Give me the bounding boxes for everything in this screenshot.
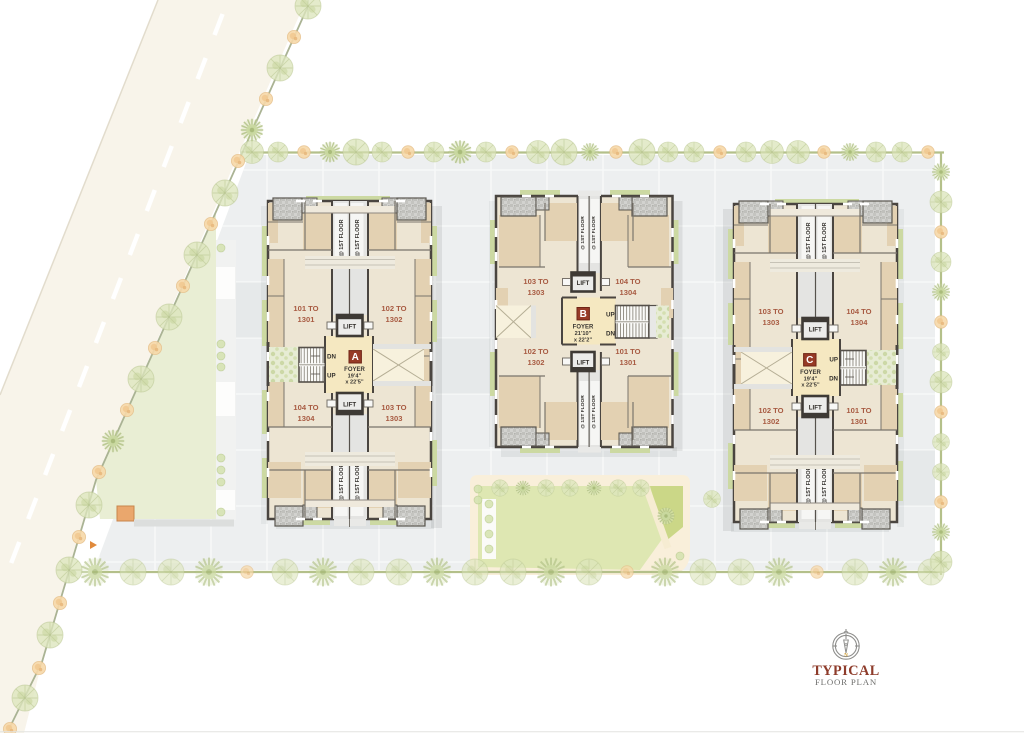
svg-text:@ 1ST FLOOR: @ 1ST FLOOR <box>806 222 812 259</box>
svg-text:@ 1ST FLOOR: @ 1ST FLOOR <box>822 222 828 259</box>
svg-text:103 TO: 103 TO <box>523 277 548 286</box>
svg-text:FOYER: FOYER <box>573 325 594 331</box>
svg-text:103 TO: 103 TO <box>758 307 783 316</box>
svg-text:104 TO: 104 TO <box>615 277 640 286</box>
svg-text:@ 1ST FLOOR: @ 1ST FLOOR <box>339 219 345 256</box>
svg-text:LIFT: LIFT <box>809 327 822 334</box>
svg-text:@ 1ST FLOOR: @ 1ST FLOOR <box>580 216 586 250</box>
svg-text:LIFT: LIFT <box>577 281 590 287</box>
svg-text:@ 1ST FLOOR: @ 1ST FLOOR <box>591 395 597 429</box>
svg-text:1304: 1304 <box>851 318 869 327</box>
svg-text:DN: DN <box>606 331 615 338</box>
svg-text:DN: DN <box>327 354 336 361</box>
svg-text:1301: 1301 <box>851 417 869 426</box>
svg-text:@ 1ST FLOOR: @ 1ST FLOOR <box>822 466 828 503</box>
svg-text:104 TO: 104 TO <box>293 403 318 412</box>
svg-text:UP: UP <box>327 373 336 380</box>
svg-text:LIFT: LIFT <box>343 402 356 409</box>
svg-text:1302: 1302 <box>528 358 545 367</box>
svg-text:A: A <box>352 352 359 363</box>
svg-text:19’4”: 19’4” <box>804 376 818 382</box>
svg-text:UP: UP <box>829 357 838 364</box>
svg-text:102 TO: 102 TO <box>758 406 783 415</box>
svg-text:21’10”: 21’10” <box>575 331 592 337</box>
svg-text:104 TO: 104 TO <box>846 307 871 316</box>
svg-text:102 TO: 102 TO <box>523 347 548 356</box>
svg-text:1303: 1303 <box>528 288 545 297</box>
svg-text:1302: 1302 <box>386 315 403 324</box>
svg-text:FOYER: FOYER <box>344 367 365 373</box>
svg-text:101 TO: 101 TO <box>846 406 871 415</box>
svg-text:x 22’5”: x 22’5” <box>345 380 364 386</box>
svg-text:19’4”: 19’4” <box>348 373 362 379</box>
svg-text:FLOOR PLAN: FLOOR PLAN <box>815 677 877 687</box>
svg-text:101 TO: 101 TO <box>293 304 318 313</box>
svg-text:C: C <box>806 355 813 366</box>
svg-text:DN: DN <box>829 376 838 383</box>
svg-text:N: N <box>844 654 848 659</box>
svg-text:102 TO: 102 TO <box>381 304 406 313</box>
svg-text:@ 1ST FLOOR: @ 1ST FLOOR <box>355 463 361 500</box>
svg-text:@ 1ST FLOOR: @ 1ST FLOOR <box>591 216 597 250</box>
svg-text:FOYER: FOYER <box>800 370 821 376</box>
svg-text:LIFT: LIFT <box>343 324 356 331</box>
svg-text:LIFT: LIFT <box>809 405 822 412</box>
svg-text:LIFT: LIFT <box>577 360 590 366</box>
svg-text:B: B <box>580 309 587 320</box>
svg-text:@ 1ST FLOOR: @ 1ST FLOOR <box>580 395 586 429</box>
svg-text:1303: 1303 <box>763 318 780 327</box>
svg-text:1303: 1303 <box>386 414 403 423</box>
svg-text:1304: 1304 <box>620 288 638 297</box>
svg-text:1304: 1304 <box>298 414 316 423</box>
svg-text:x 22’5”: x 22’5” <box>801 383 820 389</box>
svg-text:103 TO: 103 TO <box>381 403 406 412</box>
svg-text:1302: 1302 <box>763 417 780 426</box>
svg-text:@ 1ST FLOOR: @ 1ST FLOOR <box>339 463 345 500</box>
svg-text:@ 1ST FLOOR: @ 1ST FLOOR <box>806 466 812 503</box>
svg-text:1301: 1301 <box>620 358 638 367</box>
svg-text:101 TO: 101 TO <box>615 347 640 356</box>
svg-text:UP: UP <box>606 312 615 319</box>
svg-text:1301: 1301 <box>298 315 316 324</box>
svg-text:@ 1ST FLOOR: @ 1ST FLOOR <box>355 219 361 256</box>
svg-text:x 22’2”: x 22’2” <box>574 337 593 343</box>
